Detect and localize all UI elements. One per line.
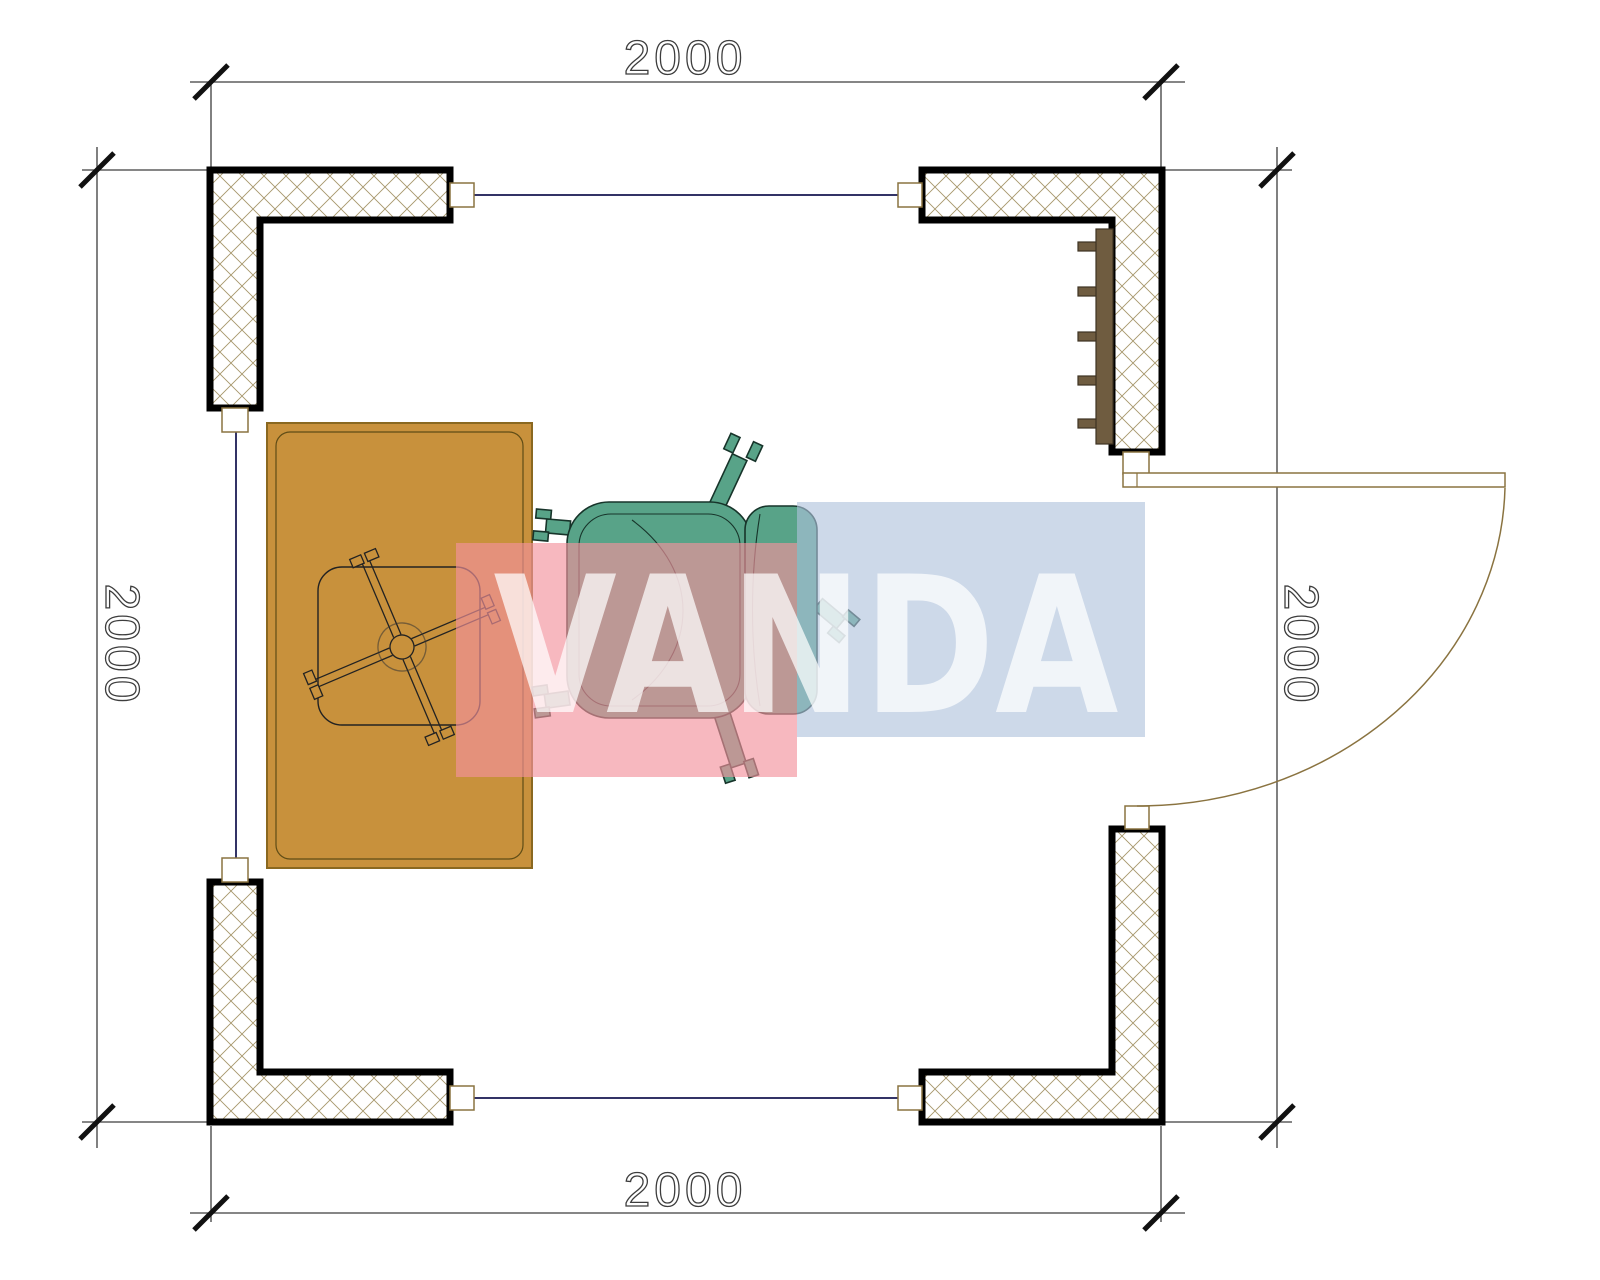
connector-box xyxy=(898,1086,922,1110)
corner-wall-top-right xyxy=(922,170,1162,452)
floor-plan: 2000 2000 2000 2000 xyxy=(0,0,1600,1280)
radiator-body xyxy=(1096,229,1113,444)
watermark-text: VANDA xyxy=(494,536,1119,757)
dimension-label-left: 2000 xyxy=(95,584,148,707)
dimension-label-top: 2000 xyxy=(624,32,747,85)
connector-box xyxy=(222,408,248,432)
corner-wall-top-left xyxy=(210,170,450,408)
corner-wall-bottom-left xyxy=(210,882,450,1122)
floor-plan-canvas: 2000 2000 2000 2000 xyxy=(0,0,1600,1280)
radiator xyxy=(1078,229,1113,444)
connector-box xyxy=(898,183,922,207)
radiator-fin xyxy=(1078,242,1098,251)
radiator-fin xyxy=(1078,287,1098,296)
radiator-fin xyxy=(1078,419,1098,428)
corner-wall-bottom-right xyxy=(922,829,1162,1122)
connector-box xyxy=(222,858,248,882)
door-frame-box-bottom xyxy=(1125,806,1149,829)
door-frame-box-top xyxy=(1123,452,1149,474)
dimension-label-right: 2000 xyxy=(1274,584,1327,707)
door-leaf xyxy=(1123,473,1505,487)
connector-box xyxy=(450,1086,474,1110)
radiator-fin xyxy=(1078,376,1098,385)
dimension-label-bottom: 2000 xyxy=(624,1164,747,1217)
radiator-fin xyxy=(1078,332,1098,341)
watermark: VANDA xyxy=(456,502,1145,777)
connector-box xyxy=(450,183,474,207)
